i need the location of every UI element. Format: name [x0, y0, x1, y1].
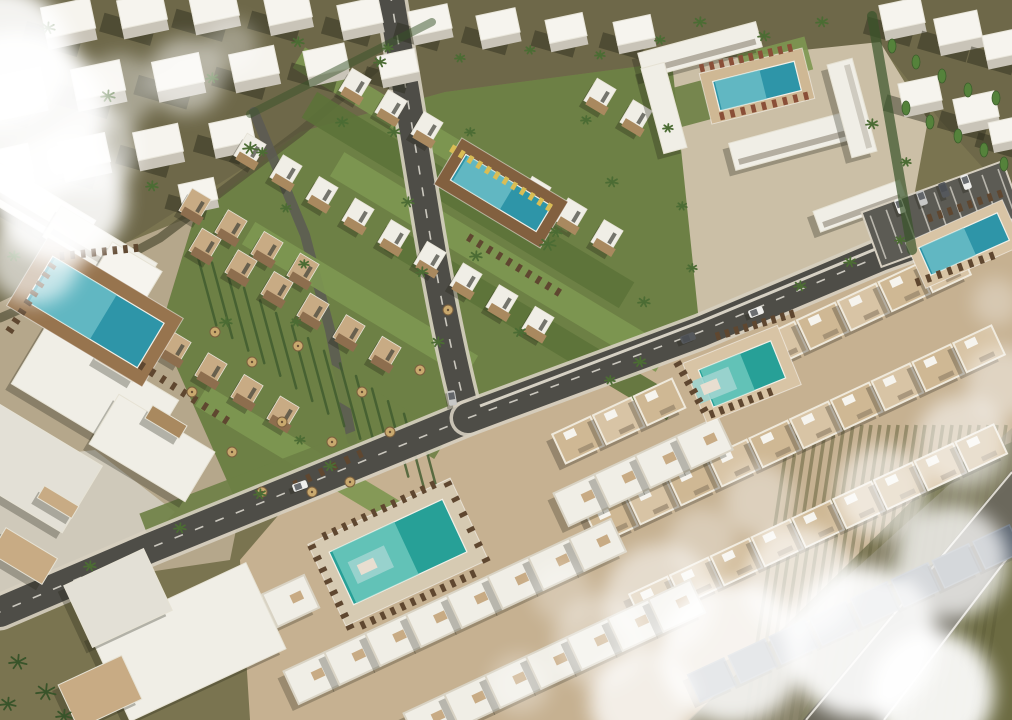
poplar-tree [992, 91, 1000, 105]
poplar-tree [888, 39, 896, 53]
sun-lounger [133, 244, 138, 252]
cloud-puff [490, 654, 550, 714]
umbrella-pole [419, 369, 421, 371]
umbrella-pole [349, 481, 351, 483]
cloud-puff [532, 562, 592, 622]
umbrella-pole [447, 309, 449, 311]
umbrella-pole [311, 491, 313, 493]
cloud-puff [724, 464, 796, 536]
umbrella-pole [231, 451, 233, 453]
poplar-tree [926, 115, 934, 129]
aerial-render-scene: Aerial 3D architectural render of a mast… [0, 0, 1012, 720]
cloud-puff [836, 446, 928, 538]
palm-frond [9, 662, 18, 663]
umbrella-pole [281, 421, 283, 423]
poplar-tree [912, 55, 920, 69]
scene-canvas [0, 0, 1012, 720]
cloud-puff [668, 508, 736, 576]
umbrella-pole [297, 345, 299, 347]
poplar-tree [980, 143, 988, 157]
poplar-tree [1000, 157, 1008, 171]
poplar-tree [954, 129, 962, 143]
sun-lounger [123, 245, 128, 253]
cloud-puff [84, 54, 156, 126]
umbrella-pole [389, 431, 391, 433]
poplar-tree [938, 69, 946, 83]
poplar-tree [964, 83, 972, 97]
poplar-tree [902, 101, 910, 115]
cloud-puff [206, 20, 258, 72]
umbrella-pole [331, 441, 333, 443]
car-windshield [448, 392, 455, 400]
umbrella-pole [251, 361, 253, 363]
umbrella-pole [191, 391, 193, 393]
sun-lounger [112, 246, 117, 254]
palm-frond [36, 692, 46, 693]
umbrella-pole [361, 391, 363, 393]
umbrella-pole [214, 331, 216, 333]
